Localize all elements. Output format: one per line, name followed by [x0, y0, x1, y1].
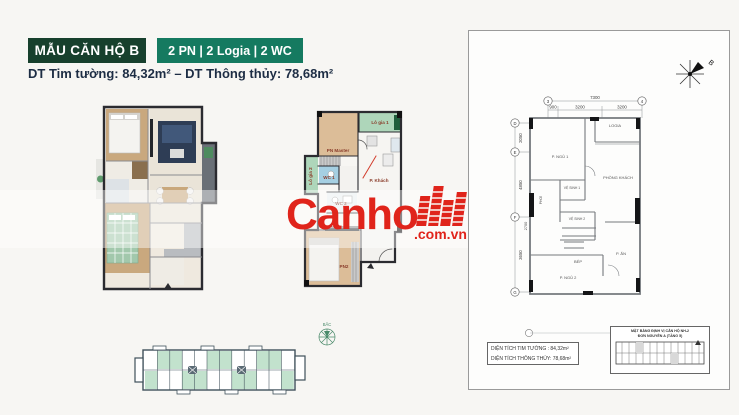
grid-bubble-d: D — [513, 121, 516, 126]
unit-type-label: MẪU CĂN HỘ B — [35, 43, 140, 58]
dim-3200a: 3200 — [575, 105, 585, 110]
tech-label-an: P. ĂN — [616, 251, 626, 256]
dim-7300: 7300 — [590, 95, 600, 100]
balcony-plant — [204, 147, 213, 158]
label-p-khach: P. Khách — [369, 178, 388, 183]
tech-label-khach: PHÒNG KHÁCH — [603, 175, 633, 180]
pn2-wardrobe — [351, 242, 359, 282]
dim-3200b: 3200 — [617, 105, 627, 110]
tech-label-bep: BẾP — [574, 259, 582, 264]
tech-label-ngu1: P. NGỦ 1 — [552, 154, 569, 159]
tech-label-ngu2: P. NGỦ 2 — [560, 275, 577, 280]
floorplate-building — [135, 346, 305, 394]
tech-label-phoi: PHƠI — [539, 196, 543, 205]
area-summary: DT Tim tường: 84,32m² – DT Thông thủy: 7… — [28, 66, 333, 81]
grid-bubble-e: E — [514, 150, 517, 155]
label-wc1: WC 1 — [323, 175, 335, 180]
grid-bubble-g: G — [513, 290, 516, 295]
dim-900: 900 — [549, 105, 557, 110]
watermark-buildings-icon — [414, 184, 472, 226]
tech-label-vs2: VỆ SINH 2 — [569, 216, 586, 221]
area-label-2: DT Thông thủy: — [185, 66, 281, 81]
sofa — [162, 125, 192, 143]
area-row1-value: 84,32m² — [550, 346, 568, 352]
coffee-table — [170, 149, 184, 158]
grid-bubble-f: F — [514, 215, 517, 220]
unit-config-badge: 2 PN | 2 Logia | 2 WC — [157, 38, 303, 63]
tech-label-vs1: VỆ SINH 1 — [564, 185, 581, 190]
area-table-row-1: DIỆN TÍCH TIM TƯỜNG : 84,32m² — [491, 344, 578, 354]
area-table-row-2: DIỆN TÍCH THÔNG THỦY: 78,68m² — [491, 354, 578, 364]
tv-wall — [150, 119, 153, 157]
dim-3650: 3650 — [518, 250, 523, 260]
area-value-2: 78,68m² — [285, 66, 333, 81]
unit-config-label: 2 PN | 2 Logia | 2 WC — [168, 44, 292, 58]
wardrobe — [132, 161, 148, 179]
tech-label-logia: LOGIA — [609, 123, 622, 128]
entry-arrow-2d — [367, 263, 374, 269]
dim-2050: 2050 — [518, 133, 523, 143]
floorplate-compass-icon — [319, 329, 335, 345]
keyplan-box: MẶT BẰNG ĐỊNH VỊ CĂN HỘ NH-2 ĐƠN NGUYÊN … — [610, 326, 710, 374]
area-row1-label: DIỆN TÍCH TIM TƯỜNG : — [491, 346, 549, 352]
label-logia1: Lô gia 1 — [371, 120, 389, 125]
floorplan-sheet: MẪU CĂN HỘ B 2 PN | 2 Logia | 2 WC DT Ti… — [0, 0, 739, 415]
keyplan-building — [612, 338, 708, 368]
area-row2-value: 78,68m² — [553, 356, 571, 362]
area-value-1: 84,32m² — [122, 66, 170, 81]
label-logia2: Lô gia 2 — [308, 167, 313, 185]
area-label-1: DT Tim tường: — [28, 66, 119, 81]
label-pn2: PN2 — [340, 264, 349, 269]
area-table: DIỆN TÍCH TIM TƯỜNG : 84,32m² DIỆN TÍCH … — [487, 342, 579, 365]
dim-2700: 2700 — [524, 222, 528, 230]
dim-4850: 4850 — [518, 180, 523, 190]
area-row2-label: DIỆN TÍCH THÔNG THỦY: — [491, 356, 551, 362]
corridor — [339, 166, 358, 192]
floorplate-diagram: BẮC — [133, 318, 348, 403]
label-pn-master: PN Master — [327, 148, 350, 153]
north-arrow-icon — [676, 60, 704, 88]
unit-type-badge: MẪU CĂN HỘ B — [28, 38, 146, 63]
floorplate-north-label: BẮC — [323, 322, 332, 327]
area-dash: – — [174, 66, 181, 81]
north-label: B — [707, 59, 715, 68]
entry-hall — [150, 257, 184, 285]
watermark-brand: Canho — [286, 193, 418, 237]
watermark-suffix: .com.vn — [414, 226, 467, 242]
